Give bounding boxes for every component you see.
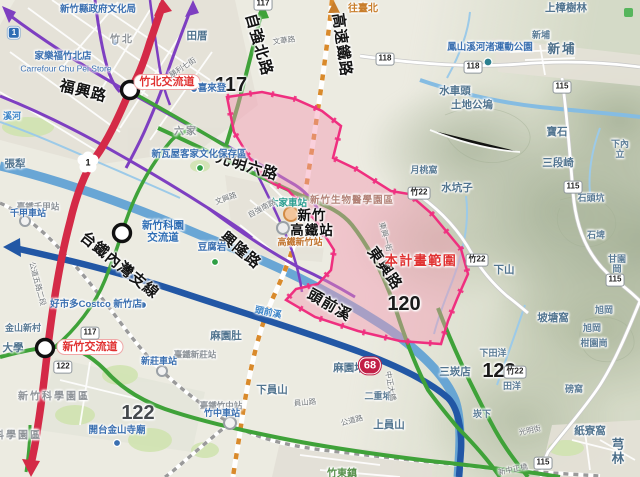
zhubei-interchange-label: 竹北交流道 <box>134 74 201 90</box>
map-label: 新瓦屋客家文化保存區 <box>151 150 246 160</box>
map-label: Carrefour Chu Pei Store <box>20 64 111 73</box>
map-canvas[interactable]: 福興路自強北路高速鐵路光明六路興隆路東興路頭前溪台鐵內灣支線新竹 高鐵站1171… <box>0 0 640 477</box>
map-label: 竹北 <box>110 35 134 46</box>
route-117-number: 117 <box>215 74 247 96</box>
map-label: 新埔 <box>532 31 550 41</box>
map-label: 水坑子 <box>441 183 473 195</box>
map-label: 下山 <box>494 265 515 277</box>
expressway-68-shield: 68 <box>359 357 381 374</box>
route-shield-115: 115 <box>606 274 625 287</box>
map-label: 溪河 <box>3 112 21 122</box>
rail-label-neiwan-branch: 台鐵內灣支線 <box>76 229 161 302</box>
map-label: 光明街 <box>518 425 542 438</box>
map-label: 寶石 <box>547 127 568 139</box>
map-label: 中正大橋 <box>383 371 396 402</box>
route-shield-118: 118 <box>464 61 483 74</box>
map-label: 東興一街 <box>377 221 393 252</box>
road-label-guangming-6: 光明六路 <box>214 150 280 184</box>
map-label: 三崁店 <box>439 367 471 379</box>
route-shield-117: 117 <box>81 327 100 340</box>
map-label: 旭岡 <box>595 306 613 316</box>
map-label: 水車頭 <box>439 86 471 98</box>
map-label: 新莊車站 <box>141 357 177 367</box>
map-label: 臺鐵竹中站 <box>200 401 243 410</box>
route-shield-竹22: 竹22 <box>504 366 527 379</box>
map-label: 高鐵新竹站 <box>277 238 322 248</box>
map-label: 員山路 <box>293 398 316 408</box>
map-label: 土地公塢 <box>451 100 493 112</box>
rail-label-hsr: 高速鐵路 <box>328 12 353 78</box>
map-labels-layer: 福興路自強北路高速鐵路光明六路興隆路東興路頭前溪台鐵內灣支線新竹 高鐵站1171… <box>0 0 640 477</box>
map-label: 田洋 <box>503 382 521 392</box>
map-label: 臺鐵新莊站 <box>174 350 217 359</box>
map-label: 六家 <box>174 127 198 138</box>
map-label: 千甲車站 <box>10 209 46 219</box>
map-label: 勝利七街 <box>168 56 198 79</box>
route-shield-115: 115 <box>553 81 572 94</box>
map-label: 麻園肚 <box>210 331 242 343</box>
map-label: 坡塘窩 <box>537 313 569 325</box>
map-label: 二重埔 <box>364 392 391 402</box>
map-label: 豆腐岩 <box>198 243 227 253</box>
map-label: 月桃窩 <box>410 166 437 176</box>
map-label: 下員山 <box>256 385 288 397</box>
route-120-number: 120 <box>387 293 420 315</box>
hsinchu-interchange-label: 新竹交流道 <box>57 339 124 355</box>
river-label-touqian: 頭前溪 <box>304 287 354 325</box>
hsr-station-label: 新竹 高鐵站 <box>290 209 334 239</box>
map-label: 開台金山寺廟 <box>88 426 145 436</box>
map-label: 石頭坑 <box>577 194 604 204</box>
route-shield-115: 115 <box>564 181 583 194</box>
route-shield-竹22: 竹22 <box>466 254 489 267</box>
route-122-number: 122 <box>121 402 154 424</box>
map-label: 柑園崗 <box>580 339 607 349</box>
map-label: 大學 <box>3 343 24 355</box>
map-label: 芎林 <box>609 438 630 466</box>
map-label: 公道路 <box>340 414 364 428</box>
map-label: 新竹縣政府文化局 <box>60 5 136 15</box>
map-label: 竹中車站 <box>204 409 240 419</box>
map-label: 文興路 <box>214 191 238 206</box>
map-label: 竹東鎮 <box>327 469 357 477</box>
map-label: 新竹科學園區 <box>18 392 90 403</box>
map-label: 頭前溪 <box>254 305 282 320</box>
map-label: 紙寮窩 <box>574 426 606 438</box>
route-shield-117: 117 <box>254 0 273 10</box>
map-label: 田厝 <box>187 31 208 43</box>
road-label-xinglong: 興隆路 <box>216 229 263 273</box>
map-label: 科學園區 <box>0 431 42 442</box>
map-label: 新竹生物醫學園區 <box>310 196 394 206</box>
map-label: 文華路 <box>272 35 295 46</box>
route-shield-118: 118 <box>376 53 395 66</box>
plan-area-label: 本計畫範圍 <box>385 254 458 268</box>
map-label: 磅窩 <box>565 385 583 395</box>
route-shield-竹22: 竹22 <box>408 187 431 200</box>
science-park-interchange-label: 新竹科園 交流道 <box>142 220 184 243</box>
northbound-taipei-label: 往臺北 <box>348 4 378 15</box>
map-label: 崁下 <box>473 410 491 420</box>
map-label: 臺鐵千甲站 <box>17 202 60 211</box>
map-label: 家樂福竹北店 <box>34 52 91 62</box>
map-label: 新中正橋 <box>497 463 528 477</box>
route-shield-122: 122 <box>53 361 72 374</box>
map-label: 新埔 <box>547 43 576 57</box>
map-label: 三段崎 <box>542 158 574 170</box>
map-label: 甘園岡 <box>606 255 629 275</box>
route-shield-115: 115 <box>534 457 553 470</box>
map-label: 金山新村 <box>5 324 41 334</box>
map-label: 六家車站 <box>269 199 307 209</box>
road-label-dongxing: 東興路 <box>363 245 404 294</box>
map-label: 張犁 <box>5 159 26 171</box>
map-label: 下田洋 <box>479 349 506 359</box>
map-label: 旭岡 <box>583 324 601 334</box>
map-label: 喜來登 <box>198 84 227 94</box>
map-label: 上員山 <box>373 420 405 432</box>
map-label: 下內立 <box>610 140 630 160</box>
map-label: 公道五路二段 <box>27 261 47 307</box>
map-label: 好市多Costco 新竹店 <box>50 300 142 310</box>
road-label-ziqiang-north: 自強北路 <box>241 12 275 78</box>
map-label: 上樟樹林 <box>545 3 587 15</box>
provincial-1-shield: 1 <box>8 27 20 39</box>
map-label: 鳳山溪河渚運動公園 <box>447 43 533 53</box>
road-label-fuxing: 福興路 <box>58 78 109 106</box>
national-freeway-1-shield: 1 <box>82 156 95 169</box>
map-label: 自強南路 <box>247 198 277 219</box>
map-label: 石埤 <box>587 231 605 241</box>
